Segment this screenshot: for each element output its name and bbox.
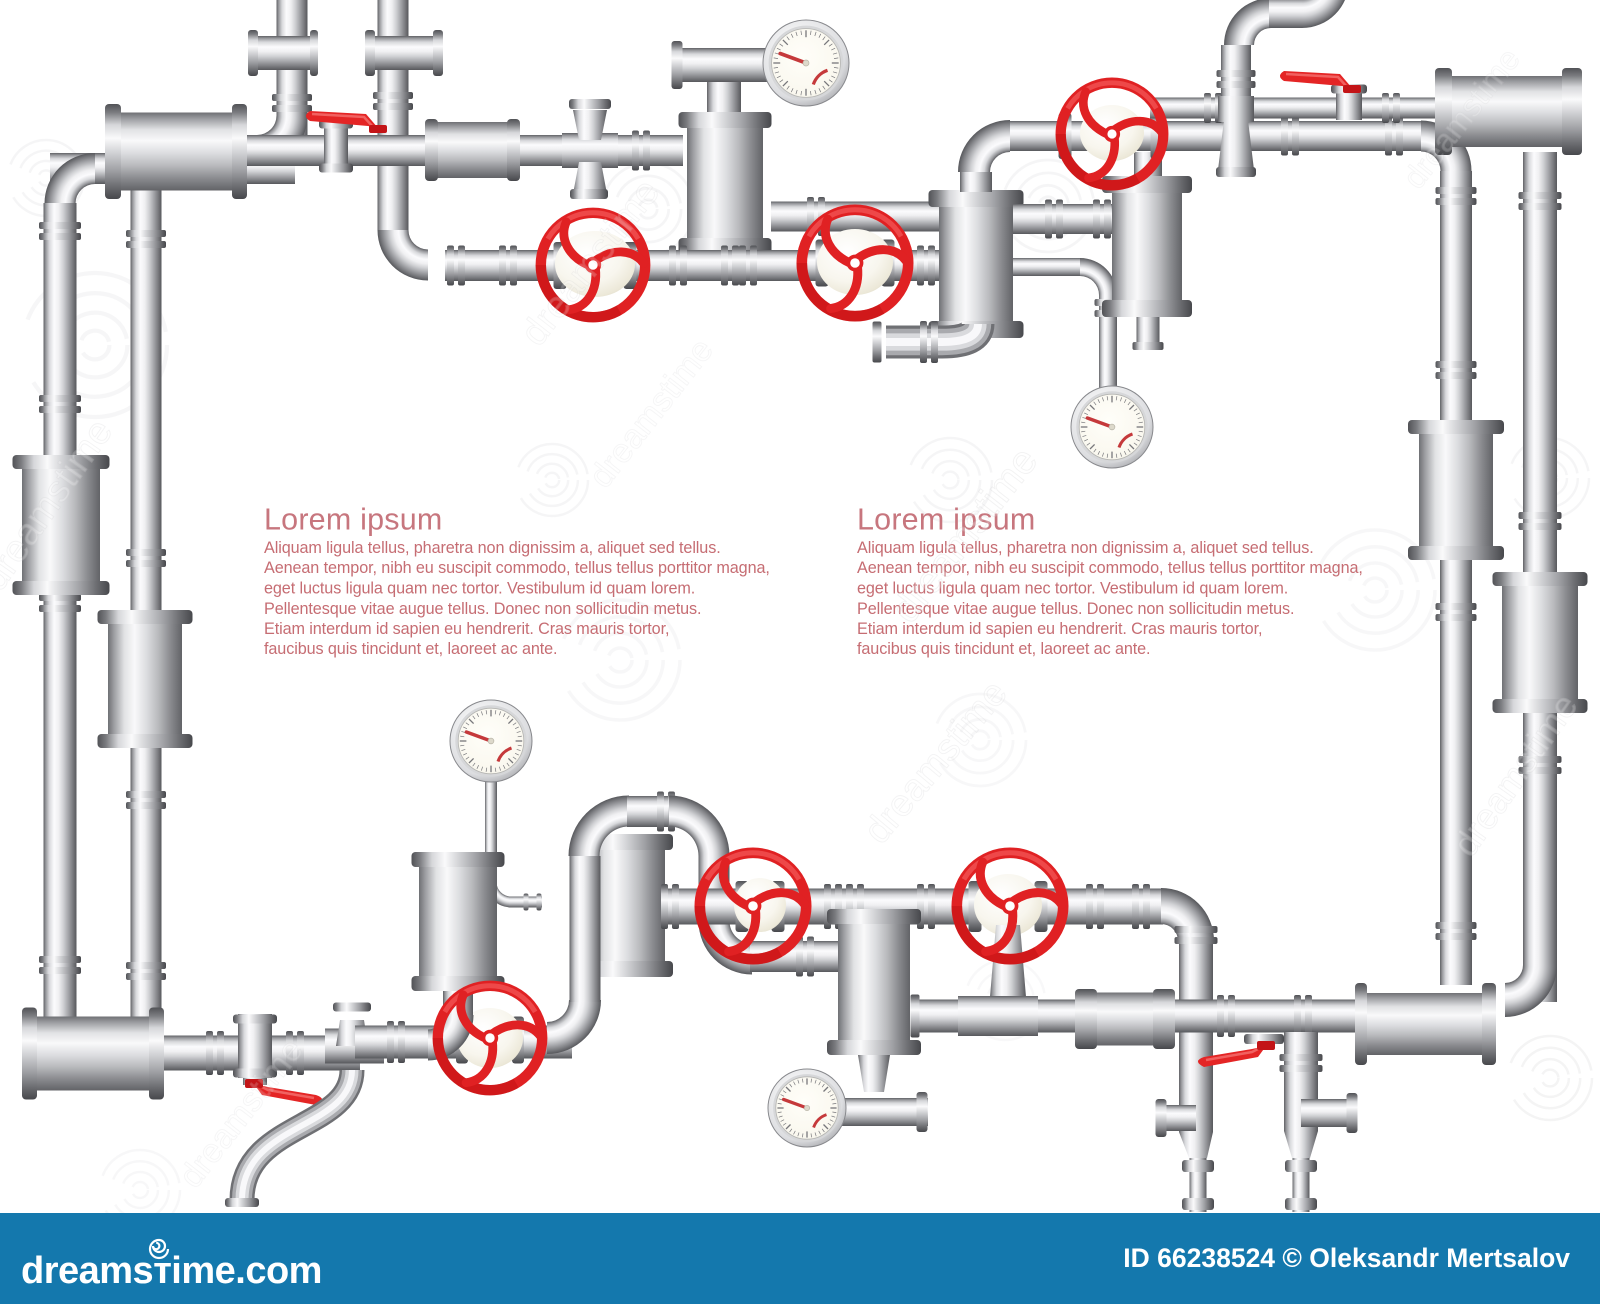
svg-text:faucibus quis tincidunt et, la: faucibus quis tincidunt et, laoreet ac a… bbox=[857, 640, 1150, 658]
svg-text:Etiam interdum id sapien eu he: Etiam interdum id sapien eu hendrerit. C… bbox=[264, 620, 669, 638]
svg-text:Pellentesque vitae augue tellu: Pellentesque vitae augue tellus. Donec n… bbox=[264, 600, 701, 618]
svg-text:faucibus quis tincidunt et, la: faucibus quis tincidunt et, laoreet ac a… bbox=[264, 640, 557, 658]
svg-text:Aliquam ligula tellus, pharetr: Aliquam ligula tellus, pharetra non dign… bbox=[264, 539, 721, 557]
svg-text:dreamsтime.com: dreamsтime.com bbox=[21, 1250, 322, 1292]
svg-text:ID 66238524 © Oleksandr Mertsa: ID 66238524 © Oleksandr Mertsalov bbox=[1123, 1243, 1570, 1273]
svg-text:Aenean tempor, nibh eu suscipi: Aenean tempor, nibh eu suscipit commodo,… bbox=[264, 559, 770, 577]
svg-text:Lorem ipsum: Lorem ipsum bbox=[264, 503, 442, 537]
svg-text:eget luctus ligula quam nec to: eget luctus ligula quam nec tortor. Vest… bbox=[264, 580, 695, 598]
